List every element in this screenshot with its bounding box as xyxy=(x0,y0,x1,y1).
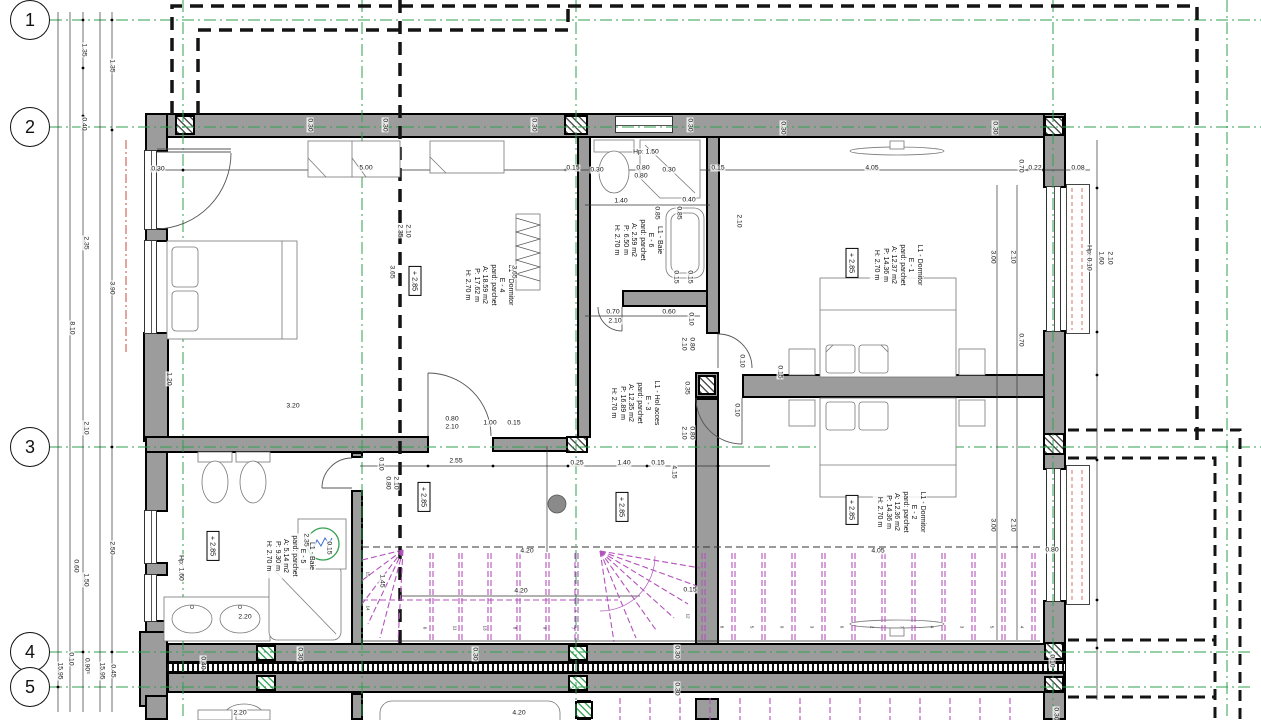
room-label-line: P: 14.36 m xyxy=(880,244,889,285)
dimension-text: 0.15 xyxy=(673,269,680,284)
dimension-text: 0.30 xyxy=(297,646,304,661)
column-hatched xyxy=(1043,433,1065,455)
room-label-line: E - 2 xyxy=(909,491,918,532)
stair-tread xyxy=(362,550,403,560)
dimension-text: 0.60 xyxy=(73,558,80,573)
dimension-text: 0.35 xyxy=(684,380,691,395)
dimension-text: 0.85 xyxy=(676,205,683,220)
neighbor-projection-lines xyxy=(1068,430,1240,720)
column-dot xyxy=(548,495,566,513)
column-hatched xyxy=(1044,116,1064,136)
dimension-text: 0.10 xyxy=(739,353,746,368)
room-label-line: P: 9.30 m xyxy=(272,535,281,576)
room-label-line: A: 12.36 m2 xyxy=(891,491,900,532)
dimension-text: 3.90 xyxy=(109,280,116,295)
dimension-text: 2.20 xyxy=(237,614,252,621)
room-label-line: H: 2.70 m xyxy=(611,219,620,260)
room-label-line: pard: parchet xyxy=(637,219,646,260)
door-arc xyxy=(157,153,231,229)
dimension-text: 5.00 xyxy=(358,165,373,172)
dimension-text: 2.50 xyxy=(109,540,116,555)
room-label-line: A: 12.35 m2 xyxy=(625,381,634,426)
dimension-text: 0.10 xyxy=(734,402,741,417)
room-label-line: L1 - Hol acces xyxy=(651,381,660,426)
dimension-text: 0.10 xyxy=(378,456,385,471)
wall-interior xyxy=(351,490,363,648)
nightstand xyxy=(959,349,985,375)
room-label-line: pard: parchet xyxy=(488,264,497,305)
room-label-line: P: 6.50 m xyxy=(620,219,629,260)
column-hatched xyxy=(564,115,588,135)
wall-mirrored xyxy=(695,698,719,720)
dimension-text: 0.40 xyxy=(81,116,88,131)
wall xyxy=(145,113,1065,138)
stair-step-number: 2 xyxy=(870,626,875,629)
grid-bubble-4: 4 xyxy=(10,632,50,672)
room-label-line: L1 - Dormitor xyxy=(917,491,926,532)
dimension-text: 4.05 xyxy=(870,548,885,555)
bed xyxy=(167,241,297,339)
dimension-text: 4.20 xyxy=(511,710,526,717)
room-label-line: L1 - Baie xyxy=(654,219,663,260)
dimension-text: 0.10 xyxy=(688,311,695,326)
room-label-line: H: 2.70 m xyxy=(871,244,880,285)
dimension-text: 1.35 xyxy=(81,42,88,57)
room-label-line: pard: parchet xyxy=(897,244,906,285)
dimension-text: 1.60 xyxy=(1098,250,1105,265)
stair-walkline-arc xyxy=(600,556,655,611)
dimension-text: 2.20 xyxy=(232,710,247,717)
dimension-text: 0.80 xyxy=(385,475,392,490)
pillow xyxy=(172,291,198,331)
bidet xyxy=(240,461,266,503)
stair-step-number: 7 xyxy=(900,626,905,629)
dimension-text: 0.30 xyxy=(307,117,314,132)
window xyxy=(144,574,157,622)
dimension-text: 2.10 xyxy=(736,213,743,228)
dimension-text: 4.20 xyxy=(519,548,534,555)
dimension-text: 0.30 xyxy=(531,117,538,132)
dimension-text: 2.10 xyxy=(1107,250,1114,265)
nightstand xyxy=(789,349,815,375)
dimension-text: 0.70 xyxy=(1018,332,1025,347)
dimension-text: 0.80 xyxy=(689,336,696,351)
stair-step-number: 4 xyxy=(1020,626,1025,629)
dimension-text: 0.30 xyxy=(687,117,694,132)
level-marker: + 2.85 xyxy=(418,482,431,512)
dimension-text: 4.05 xyxy=(864,165,879,172)
wall xyxy=(145,113,168,152)
stair-step-number: 8 xyxy=(720,626,725,629)
toilet-tank xyxy=(236,452,270,462)
dimension-text: 2.10 xyxy=(393,475,400,490)
dimension-text: 2.10 xyxy=(607,318,622,325)
dimension-text: 0.30 xyxy=(1053,706,1060,720)
column-hatched xyxy=(175,115,195,135)
dimension-text: 0.15 xyxy=(682,587,697,594)
dimension-text: 0.45 xyxy=(110,663,117,678)
room-label-line: E - 3 xyxy=(643,381,652,426)
dimension-text: 2.55 xyxy=(448,458,463,465)
grid-lines xyxy=(50,0,1261,720)
room-label-line: A: 5.14 m2 xyxy=(280,535,289,576)
pillow xyxy=(172,247,198,287)
dimension-text: Hp: 0.10 xyxy=(1086,244,1093,272)
dimension-text: 0.80 xyxy=(689,425,696,440)
dimension-text: 2.10 xyxy=(405,223,412,238)
dresser xyxy=(850,147,944,155)
dimension-text: 2.10 xyxy=(83,420,90,435)
stair-step-number: 15 xyxy=(366,571,371,576)
dimension-text: 2.35 xyxy=(83,235,90,250)
dimension-text: 0.30 xyxy=(472,646,479,661)
dimension-text: 3.65 xyxy=(389,264,396,279)
column-hatched xyxy=(568,675,588,691)
dimension-text: 2.35 xyxy=(303,532,310,547)
pillow xyxy=(859,345,888,373)
dimension-text: 0.15 xyxy=(650,460,665,467)
wall xyxy=(145,695,168,720)
room-label-line: E - 1 xyxy=(906,244,915,285)
closet-hangers xyxy=(516,214,540,290)
room-label-e6: L1 - BaieE - 6pard: parchetA: 2.59 m2P: … xyxy=(610,217,664,262)
dimension-text: 0.15 xyxy=(326,540,333,555)
dimension-text: 0.85 xyxy=(654,205,661,220)
level-marker: + 2.85 xyxy=(409,266,422,296)
column-hatched xyxy=(256,645,276,661)
dimension-text: 0.30 xyxy=(992,120,999,135)
wall-interior xyxy=(742,374,1065,398)
stair-tread xyxy=(600,551,674,618)
dimension-text: 0.30 xyxy=(780,120,787,135)
wall-interior xyxy=(351,693,363,720)
grid-bubble-5: 5 xyxy=(10,667,50,707)
dimension-text: 1.00 xyxy=(482,420,497,427)
pillow xyxy=(859,402,888,430)
dimension-text: 2.10 xyxy=(681,425,688,440)
bed xyxy=(820,398,956,497)
dimension-text: 2.10 xyxy=(444,424,459,431)
wall-interior xyxy=(145,436,429,453)
pillow xyxy=(826,345,855,373)
dimension-text: 0.30 xyxy=(674,644,681,659)
toilet-tank xyxy=(594,140,634,152)
stair-step-number: 7 xyxy=(571,627,576,630)
dimension-text: 0.80 xyxy=(444,416,459,423)
dimension-text: 15.95 xyxy=(99,661,106,680)
dimension-text: 0.40 xyxy=(681,197,696,204)
dimension-text: 0.25 xyxy=(569,460,584,467)
dimension-text: 0.10 xyxy=(68,651,75,666)
dimension-text: 0.60 xyxy=(661,309,676,316)
room-label-line: pard: parchet xyxy=(900,491,909,532)
nightstand xyxy=(789,400,815,426)
dimension-text: 0.15 xyxy=(506,420,521,427)
room-label-line: A: 18.59 m2 xyxy=(479,264,488,305)
dimension-text: 0.10 xyxy=(1049,653,1056,668)
dimension-text: 1.45 xyxy=(379,573,386,588)
dimension-text: 1.50 xyxy=(83,572,90,587)
column-hatched xyxy=(568,645,588,661)
bathtub-mirrored xyxy=(380,701,560,720)
room-label-line: P: 16.89 m xyxy=(617,381,626,426)
dimension-text: 3.00 xyxy=(990,517,997,532)
dimension-text: Hp: 1.60 xyxy=(178,554,185,582)
room-label-e4: L1 - DormitorE - 4pard: parchetA: 18.59 … xyxy=(461,262,515,307)
window xyxy=(144,150,157,230)
stair-step-number: 14 xyxy=(366,605,371,610)
room-label-line: H: 2.70 m xyxy=(263,535,272,576)
column-hatched xyxy=(1044,676,1064,692)
stair-tread xyxy=(600,551,614,642)
dimension-text: 0.80 xyxy=(633,173,648,180)
dimension-text: 8.10 xyxy=(69,320,76,335)
bed xyxy=(820,278,956,377)
stair-step-number: 5 xyxy=(990,626,995,629)
furniture xyxy=(164,140,985,720)
dimension-text: 1.20 xyxy=(166,371,173,386)
dimension-text: 1.40 xyxy=(616,460,631,467)
wall xyxy=(143,332,169,442)
column-hatched xyxy=(575,701,593,719)
room-label-line: H: 2.70 m xyxy=(608,381,617,426)
party-wall-lower xyxy=(167,672,1065,693)
wall-interior xyxy=(695,398,719,648)
dimension-text: 1.35 xyxy=(109,58,116,73)
window xyxy=(1046,468,1061,602)
dimension-text: 0.22 xyxy=(1027,165,1042,172)
room-label-line: L1 - Dormitor xyxy=(914,244,923,285)
dimension-text: 4.15 xyxy=(671,464,678,479)
toilet xyxy=(202,461,228,503)
party-wall-insulation xyxy=(167,663,1065,672)
dimension-text: 1.40 xyxy=(613,198,628,205)
stair-step-number: 4 xyxy=(930,626,935,629)
dimension-text: 0.70 xyxy=(605,309,620,316)
stair-step-number: 8 xyxy=(513,627,518,630)
section-lines xyxy=(126,140,1082,600)
dimension-text: 4.20 xyxy=(513,588,528,595)
stair-tread xyxy=(600,551,636,638)
wall-interior xyxy=(492,437,568,452)
wall-interior xyxy=(351,452,363,458)
dimension-text: 0.15 xyxy=(777,364,784,379)
dimension-text: 0.70 xyxy=(1018,158,1025,173)
window xyxy=(144,240,157,334)
room-label-line: H: 2.70 m xyxy=(462,264,471,305)
stair-step-number: 6 xyxy=(423,627,428,630)
window xyxy=(615,116,673,133)
bathtub xyxy=(666,208,704,278)
stair-step-number: 3 xyxy=(810,626,815,629)
grid-bubble-3: 3 xyxy=(10,427,50,467)
level-marker: + 2.85 xyxy=(616,492,629,522)
stair-tread xyxy=(600,551,656,630)
dimension-text: 3.65 xyxy=(511,264,518,279)
stair-step-number: 6 xyxy=(840,626,845,629)
room-label-line: A: 2.59 m2 xyxy=(628,219,637,260)
dimension-text: 3.00 xyxy=(990,249,997,264)
dimension-text: 0.30 xyxy=(661,167,676,174)
dimension-text: Hp: 1.50 xyxy=(632,149,660,156)
stair-tread xyxy=(398,550,403,642)
room-label-line: E - 4 xyxy=(497,264,506,305)
room-label-line: pard: parchet xyxy=(634,381,643,426)
dimension-text: 0.15 xyxy=(565,165,580,172)
sink xyxy=(172,605,212,633)
dimension-text: 0.30 xyxy=(382,117,389,132)
stair-step-number: 3 xyxy=(960,626,965,629)
dimension-text: 0.80 xyxy=(635,165,650,172)
window xyxy=(144,510,157,564)
stair-tread xyxy=(600,551,688,604)
dimension-text: 0.15 xyxy=(710,165,725,172)
dimension-text: 0.90⁵ xyxy=(84,657,91,675)
dimension-text: 15.95 xyxy=(57,661,64,680)
stair-step-number: 12 xyxy=(686,613,691,618)
dimension-text: 0.30 xyxy=(674,681,681,696)
dimension-text: 0.80 xyxy=(1044,547,1059,554)
stair-tread xyxy=(368,550,403,624)
level-marker: + 2.85 xyxy=(846,495,859,525)
toilet-tank xyxy=(198,452,232,462)
dimension-text: 0.30 xyxy=(150,166,165,173)
wardrobe xyxy=(308,141,400,177)
dimension-text: 3.20 xyxy=(285,403,300,410)
pillow xyxy=(826,402,855,430)
room-label-e1: L1 - DormitorE - 1pard: parchetA: 12.37 … xyxy=(870,242,924,287)
dimension-text: 0.40 xyxy=(200,655,207,670)
dimension-text: 2.35 xyxy=(397,223,404,238)
dimension-text: 2.10 xyxy=(681,336,688,351)
room-label-line: pard: parchet xyxy=(289,535,298,576)
column-hatched xyxy=(566,436,588,453)
dimension-text: 0.15 xyxy=(687,269,694,284)
dimension-text: 2.10 xyxy=(1010,517,1017,532)
stair-step-number: 9 xyxy=(543,627,548,630)
level-marker: + 2.85 xyxy=(846,248,859,278)
stair-tread xyxy=(600,551,697,586)
wall-interior xyxy=(577,136,591,438)
stair-tread xyxy=(380,550,403,638)
column-hatched xyxy=(698,375,716,395)
level-marker: + 2.85 xyxy=(207,531,220,561)
room-label-e2: L1 - DormitorE - 2pard: parchetA: 12.36 … xyxy=(873,489,927,534)
column-hatched xyxy=(256,675,276,691)
dimension-text: 0.30 xyxy=(589,167,604,174)
window xyxy=(1046,186,1061,332)
stair-step-number: 5 xyxy=(750,626,755,629)
balcony-slab xyxy=(1066,465,1090,605)
floorplan-canvas: 12345 L1 - DormitorE - 4pard: parchetA: … xyxy=(0,0,1261,720)
wardrobe xyxy=(430,141,504,173)
room-label-line: H: 2.70 m xyxy=(874,491,883,532)
grid-bubble-2: 2 xyxy=(10,107,50,147)
stair-step-number: 11 xyxy=(453,626,458,631)
stair-tread xyxy=(600,551,700,568)
nightstand xyxy=(959,400,985,426)
stair-step-number: 9 xyxy=(780,626,785,629)
floorplan-linework xyxy=(0,0,1261,720)
room-label-line: P: 14.36 m xyxy=(883,491,892,532)
room-label-line: E - 6 xyxy=(646,219,655,260)
room-label-line: A: 12.37 m2 xyxy=(888,244,897,285)
dimension-text: 2.10 xyxy=(1010,249,1017,264)
stair-step-number: 13 xyxy=(483,625,488,630)
grid-bubble-1: 1 xyxy=(10,0,50,40)
vanity-counter xyxy=(164,597,270,641)
dimension-text: 0.08 xyxy=(1070,165,1085,172)
room-label-e3: L1 - Hol accesE - 3pard: parchetA: 12.35… xyxy=(607,379,661,428)
room-label-line: P: 17.62 m xyxy=(471,264,480,305)
